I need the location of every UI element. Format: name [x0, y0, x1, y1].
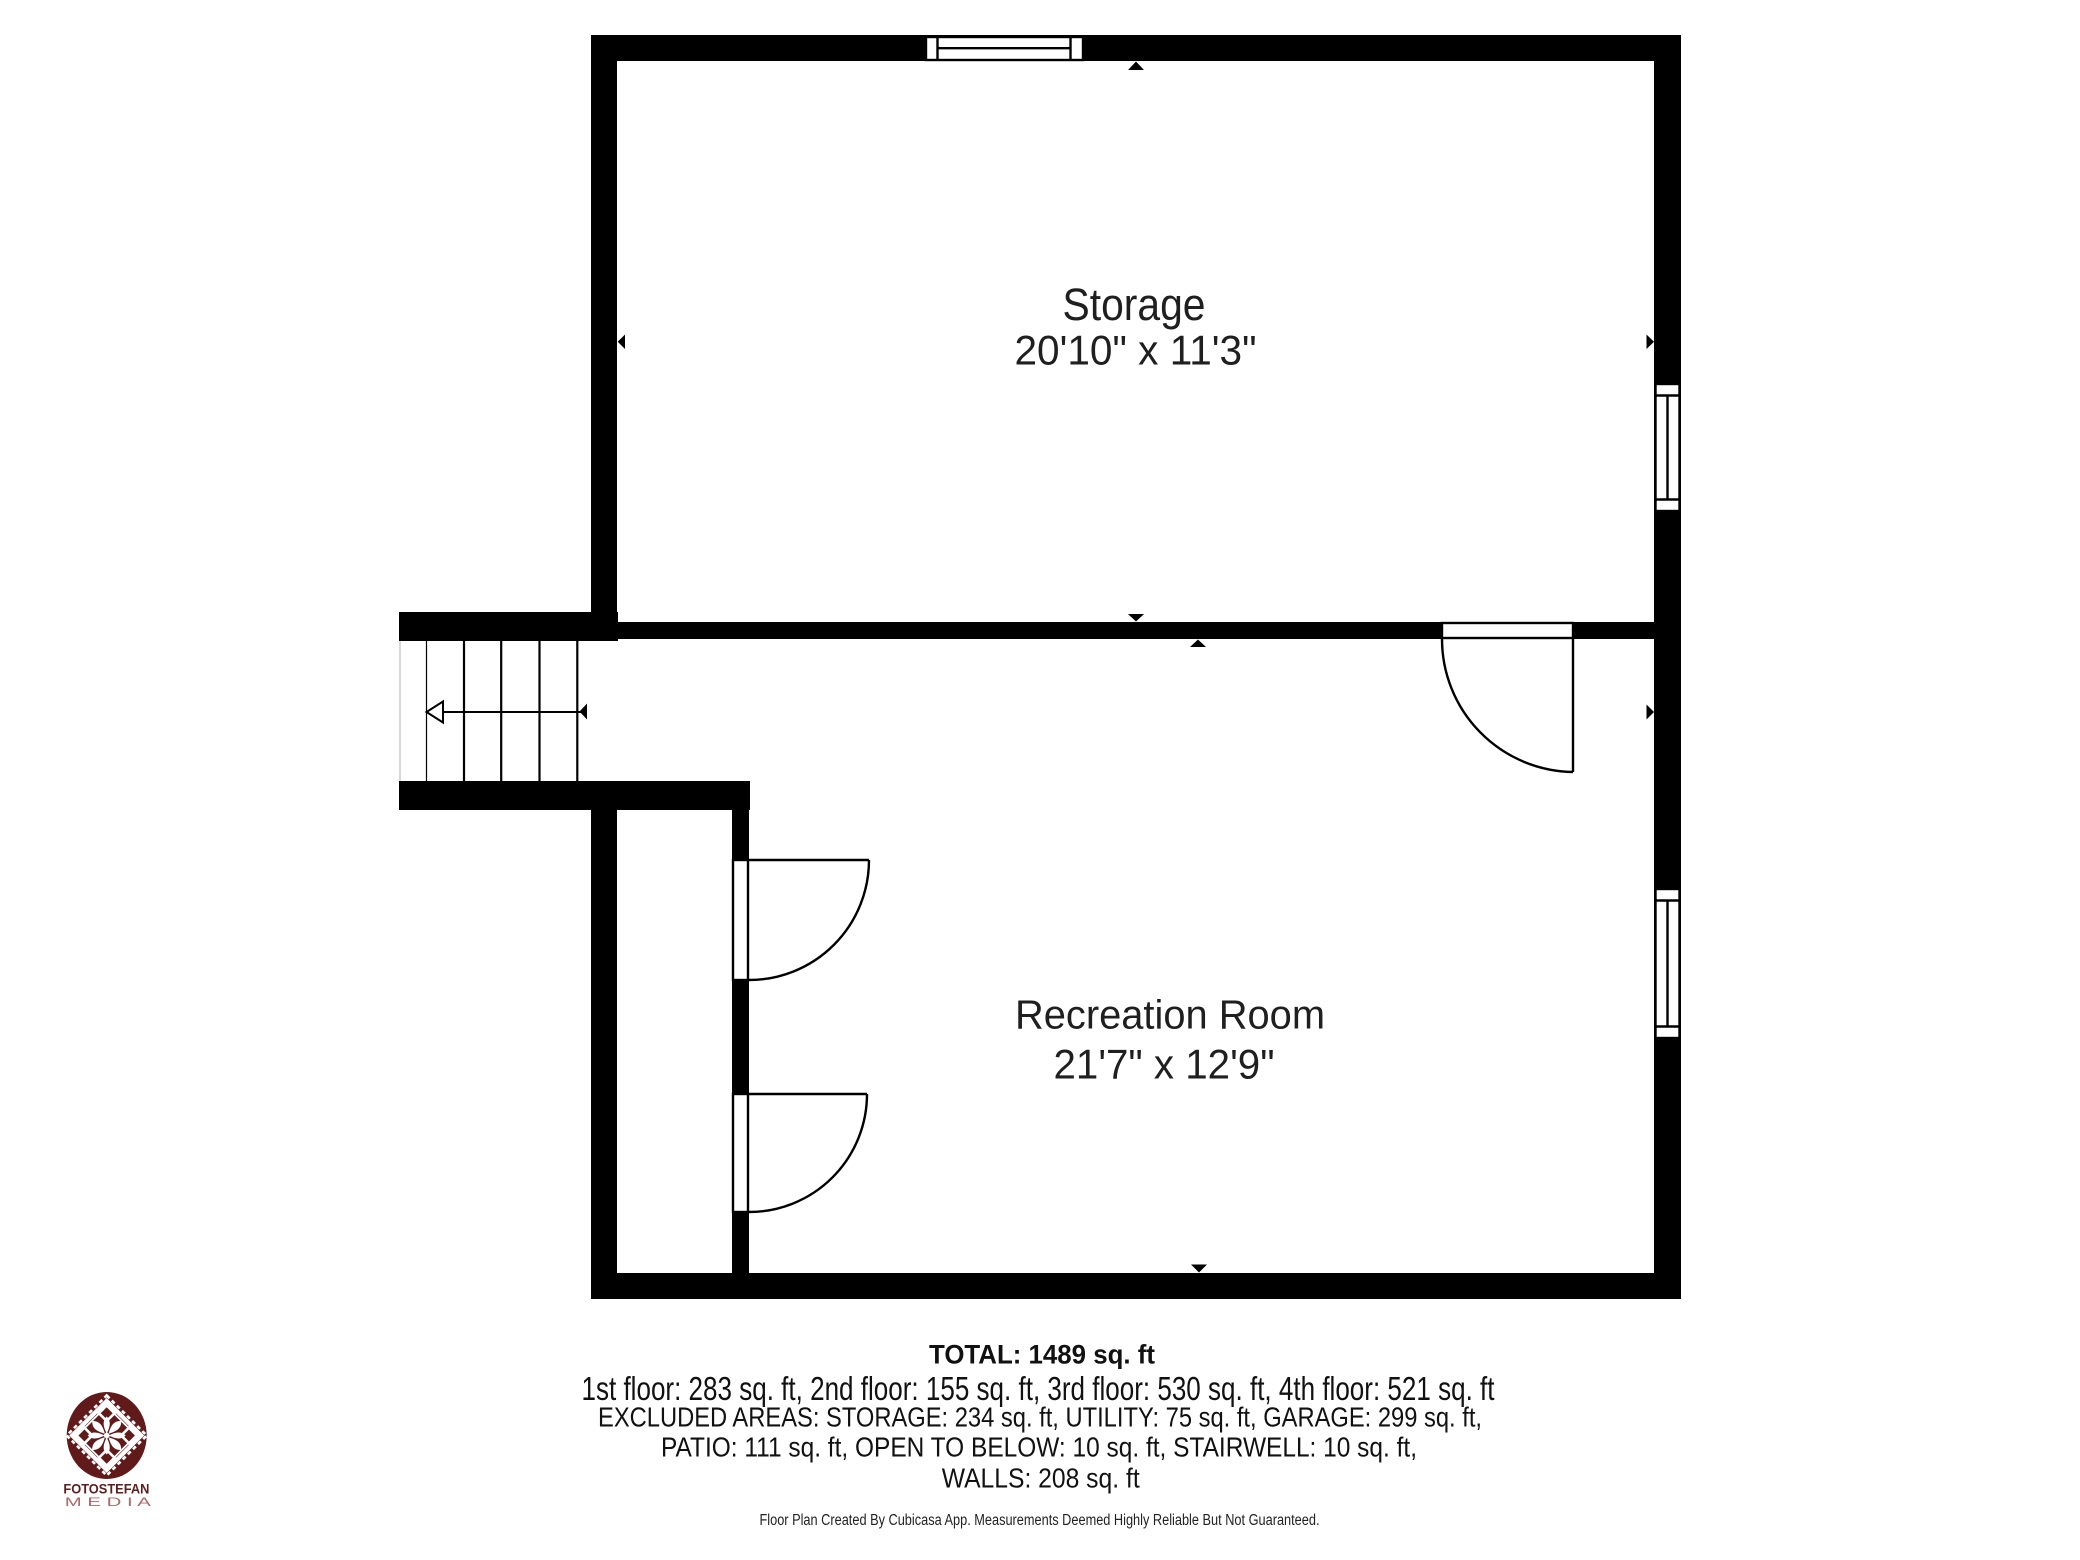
svg-text:20'10" x 11'3": 20'10" x 11'3"	[1015, 327, 1257, 374]
svg-text:WALLS: 208 sq. ft: WALLS: 208 sq. ft	[942, 1463, 1140, 1494]
svg-text:EXCLUDED AREAS: STORAGE: 234 s: EXCLUDED AREAS: STORAGE: 234 sq. ft, UTI…	[598, 1402, 1482, 1433]
svg-text:M E D I A: M E D I A	[65, 1497, 152, 1509]
svg-text:Floor Plan Created By Cubicasa: Floor Plan Created By Cubicasa App. Meas…	[760, 1512, 1320, 1529]
svg-text:Storage: Storage	[1063, 279, 1206, 330]
svg-text:FOTOSTEFAN: FOTOSTEFAN	[63, 1482, 149, 1497]
svg-text:PATIO: 111 sq. ft, OPEN TO BEL: PATIO: 111 sq. ft, OPEN TO BELOW: 10 sq.…	[661, 1432, 1417, 1463]
svg-text:Recreation Room: Recreation Room	[1015, 991, 1325, 1037]
svg-text:TOTAL: 1489 sq. ft: TOTAL: 1489 sq. ft	[929, 1340, 1155, 1370]
svg-text:21'7" x 12'9": 21'7" x 12'9"	[1054, 1041, 1275, 1088]
